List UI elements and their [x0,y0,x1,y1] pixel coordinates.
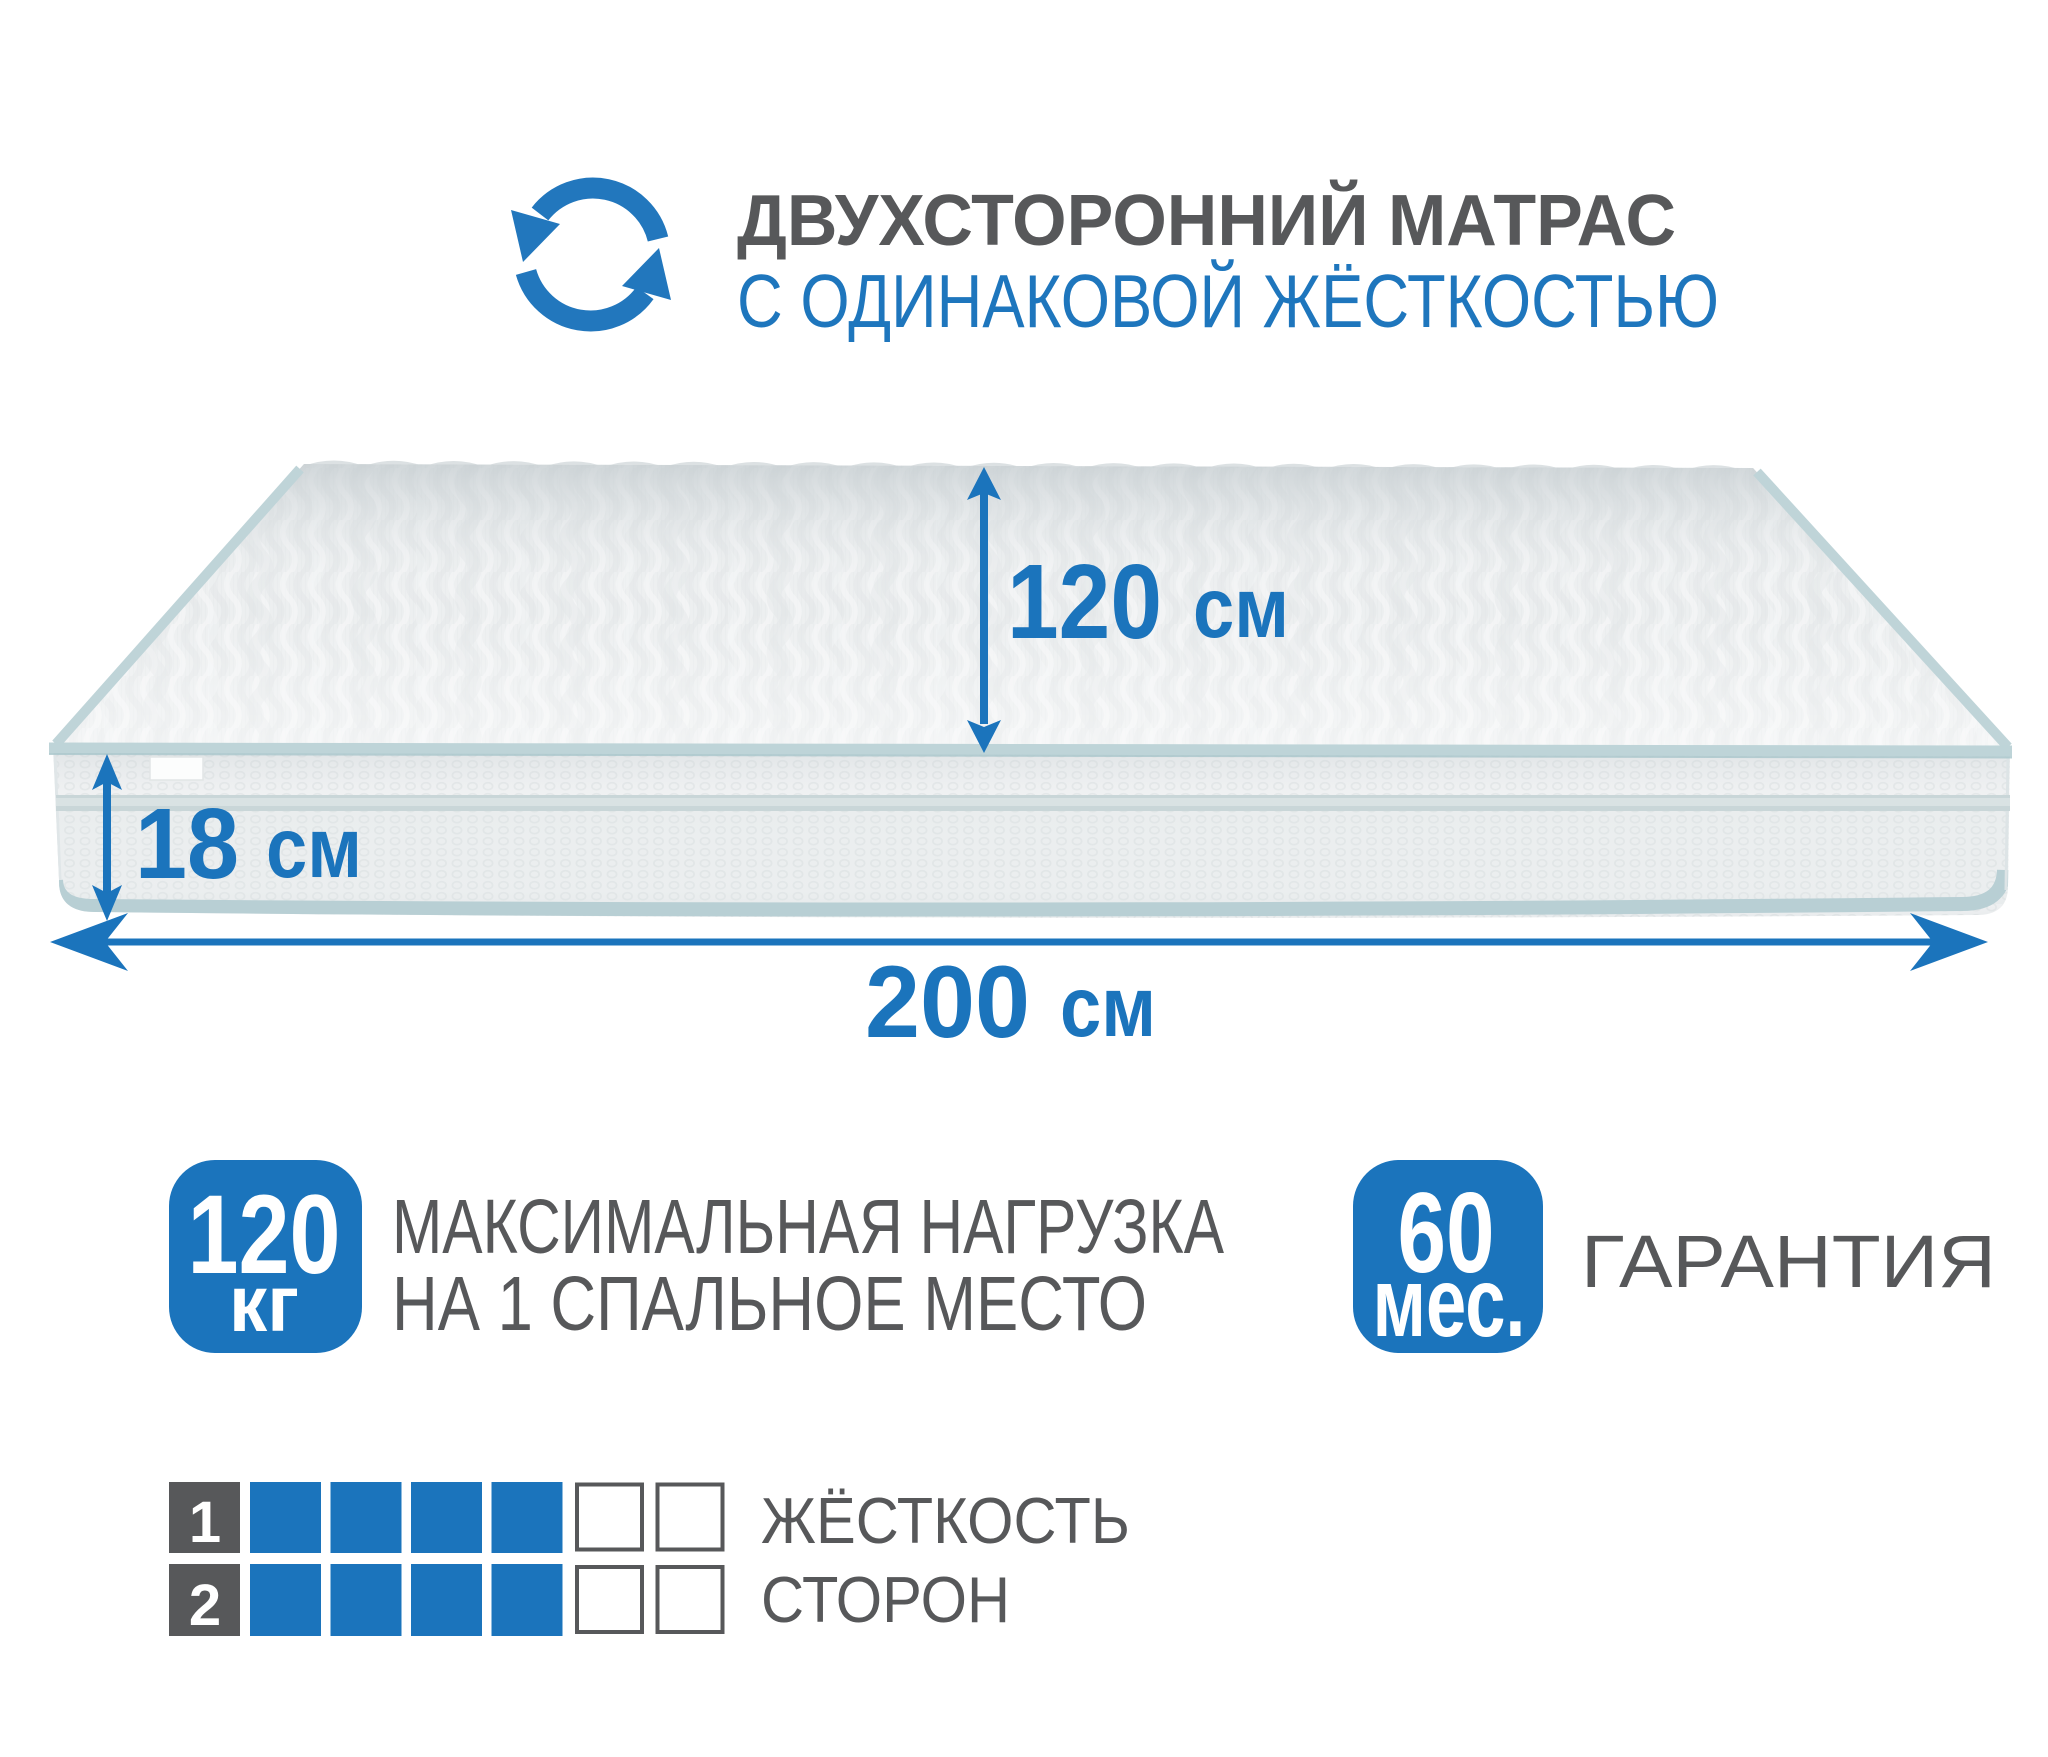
svg-text:кг: кг [229,1259,299,1348]
svg-text:120: 120 [1007,543,1162,661]
svg-text:ГАРАНТИЯ: ГАРАНТИЯ [1581,1220,1996,1303]
svg-text:мес.: мес. [1373,1247,1526,1357]
svg-text:см: см [266,801,362,896]
svg-text:1: 1 [189,1490,221,1555]
svg-text:С ОДИНАКОВОЙ ЖЁСТКОСТЬЮ: С ОДИНАКОВОЙ ЖЁСТКОСТЬЮ [737,259,1719,343]
svg-text:СТОРОН: СТОРОН [761,1563,1010,1636]
svg-text:ДВУХСТОРОННИЙ МАТРАС: ДВУХСТОРОННИЙ МАТРАС [737,179,1676,261]
svg-text:см: см [1060,960,1156,1055]
svg-text:2: 2 [189,1573,221,1638]
svg-text:МАКСИМАЛЬНАЯ НАГРУЗКА: МАКСИМАЛЬНАЯ НАГРУЗКА [392,1184,1224,1270]
svg-text:200: 200 [865,945,1030,1059]
svg-text:ЖЁСТКОСТЬ: ЖЁСТКОСТЬ [761,1484,1130,1557]
svg-text:18: 18 [135,788,239,900]
svg-text:см: см [1193,561,1289,656]
svg-text:НА 1 СПАЛЬНОЕ МЕСТО: НА 1 СПАЛЬНОЕ МЕСТО [392,1261,1147,1347]
